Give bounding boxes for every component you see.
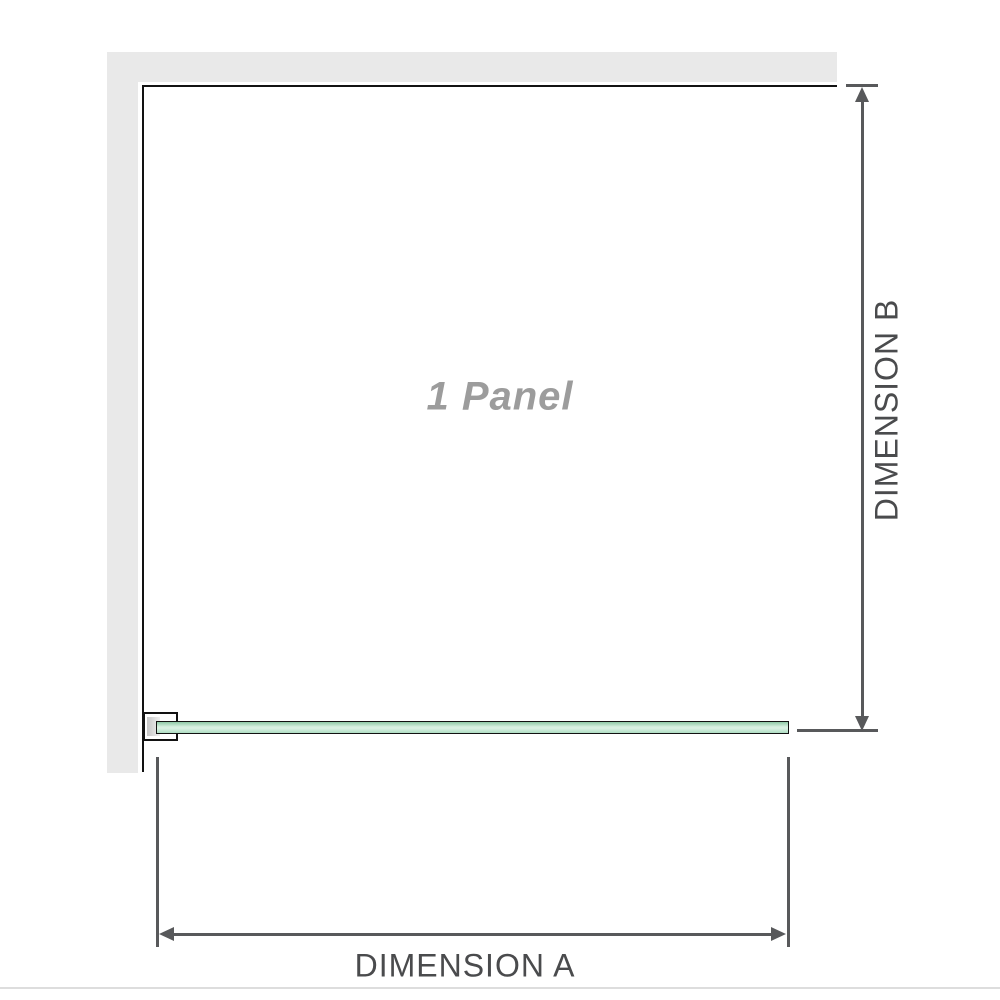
dimension-b-line [861,95,864,716]
dimension-a-arrow-left-icon [159,927,174,941]
dimension-b-arrow-down-icon [855,716,869,731]
dimension-b-arrow-up-icon [855,87,869,102]
dimension-a-left-tick [156,757,159,947]
dimension-a-label: DIMENSION A [355,948,576,985]
wall-left-bar [107,52,138,773]
dimension-a-right-tick [787,757,790,947]
dimension-a-line [170,933,776,936]
glass-panel-bar [156,721,789,734]
panel-count-label: 1 Panel [426,375,573,420]
dimension-a-arrow-right-icon [771,927,786,941]
wall-top-bar [107,52,837,82]
dimension-b-label: DIMENSION B [869,299,906,522]
page-separator-line [0,987,1000,989]
panel-outline-top [142,85,837,87]
panel-outline-left [142,85,144,772]
shower-panel-dimension-diagram: 1 Panel DIMENSION B DIMENSION A [0,0,1000,1000]
